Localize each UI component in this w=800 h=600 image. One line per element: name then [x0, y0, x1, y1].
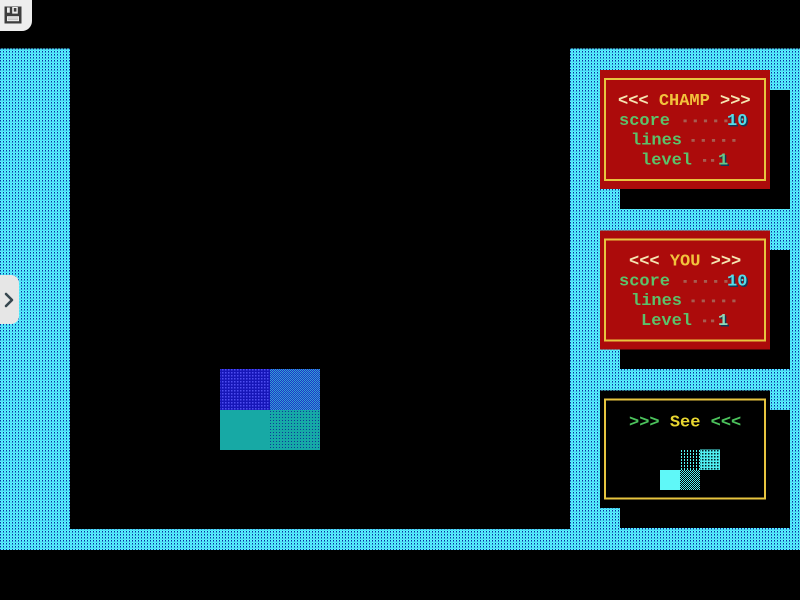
- svg-text:lines: lines: [631, 292, 682, 311]
- svg-text:level: level: [641, 152, 692, 171]
- svg-text:10: 10: [727, 273, 747, 292]
- svg-text:1: 1: [718, 312, 728, 331]
- svg-text:1: 1: [718, 152, 728, 171]
- svg-text:<<< YOU >>>: <<< YOU >>>: [629, 253, 741, 272]
- svg-text:>>> See <<<: >>> See <<<: [629, 414, 741, 433]
- svg-text:Level: Level: [641, 312, 692, 331]
- svg-text:10: 10: [727, 112, 747, 131]
- svg-text:lines: lines: [631, 132, 682, 151]
- svg-text:score: score: [619, 273, 670, 292]
- svg-text:score: score: [619, 112, 670, 131]
- svg-text:<<< CHAMP >>>: <<< CHAMP >>>: [618, 92, 751, 111]
